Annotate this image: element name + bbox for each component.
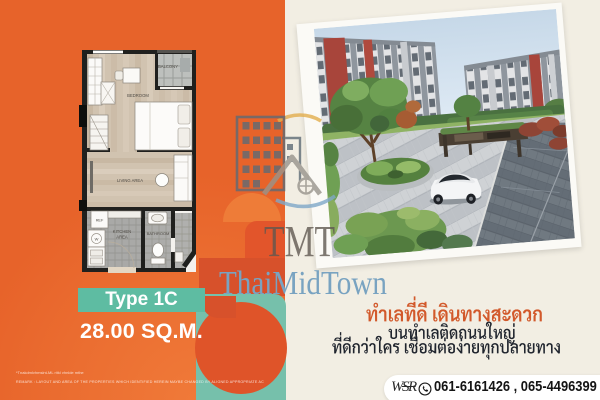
svg-text:KITCHEN: KITCHEN	[113, 229, 131, 234]
svg-text:BATHROOM: BATHROOM	[147, 231, 170, 236]
svg-text:LIVING AREA: LIVING AREA	[117, 178, 143, 183]
svg-text:REF: REF	[96, 219, 104, 223]
svg-text:BALCONY: BALCONY	[158, 64, 178, 69]
svg-text:W: W	[95, 237, 99, 242]
svg-text:BEDROOM: BEDROOM	[127, 93, 149, 98]
svg-text:AREA: AREA	[116, 235, 128, 240]
